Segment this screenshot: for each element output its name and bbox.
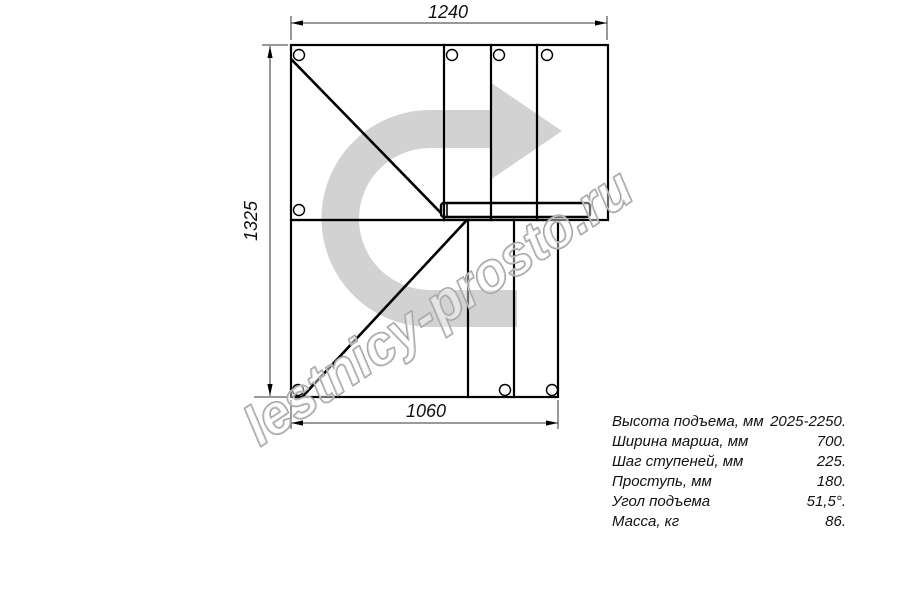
spec-value: 700. [817,432,846,452]
hole [542,50,553,61]
hole [494,50,505,61]
spec-row-angle: Угол подъема 51,5°. [612,492,846,512]
spec-label: Ширина марша, мм [612,432,748,452]
staircase-drawing-page: 1240 1325 1060 lestnicy-prosto.ru Высота… [0,0,900,600]
hole [294,50,305,61]
spec-label: Угол подъема [612,492,710,512]
spec-row-tread: Проступь, мм 180. [612,472,846,492]
spec-label: Масса, кг [612,512,679,532]
spec-value: 86. [825,512,846,532]
hole [500,385,511,396]
hole [447,50,458,61]
spec-value: 51,5°. [807,492,846,512]
dimension-top-label: 1240 [428,2,468,22]
spec-row-height: Высота подъема, мм 2025-2250. [612,412,846,432]
hole [294,205,305,216]
spec-value: 225. [817,452,846,472]
spec-label: Высота подъема, мм [612,412,764,432]
dimension-left-label: 1325 [241,200,261,241]
spec-row-mass: Масса, кг 86. [612,512,846,532]
specs-table: Высота подъема, мм 2025-2250. Ширина мар… [612,412,846,532]
dimension-bottom-label: 1060 [406,401,446,421]
hole [547,385,558,396]
spec-value: 2025-2250. [770,412,846,432]
spec-row-step-pitch: Шаг ступеней, мм 225. [612,452,846,472]
spec-label: Шаг ступеней, мм [612,452,743,472]
spec-label: Проступь, мм [612,472,712,492]
spec-row-march-width: Ширина марша, мм 700. [612,432,846,452]
spec-value: 180. [817,472,846,492]
